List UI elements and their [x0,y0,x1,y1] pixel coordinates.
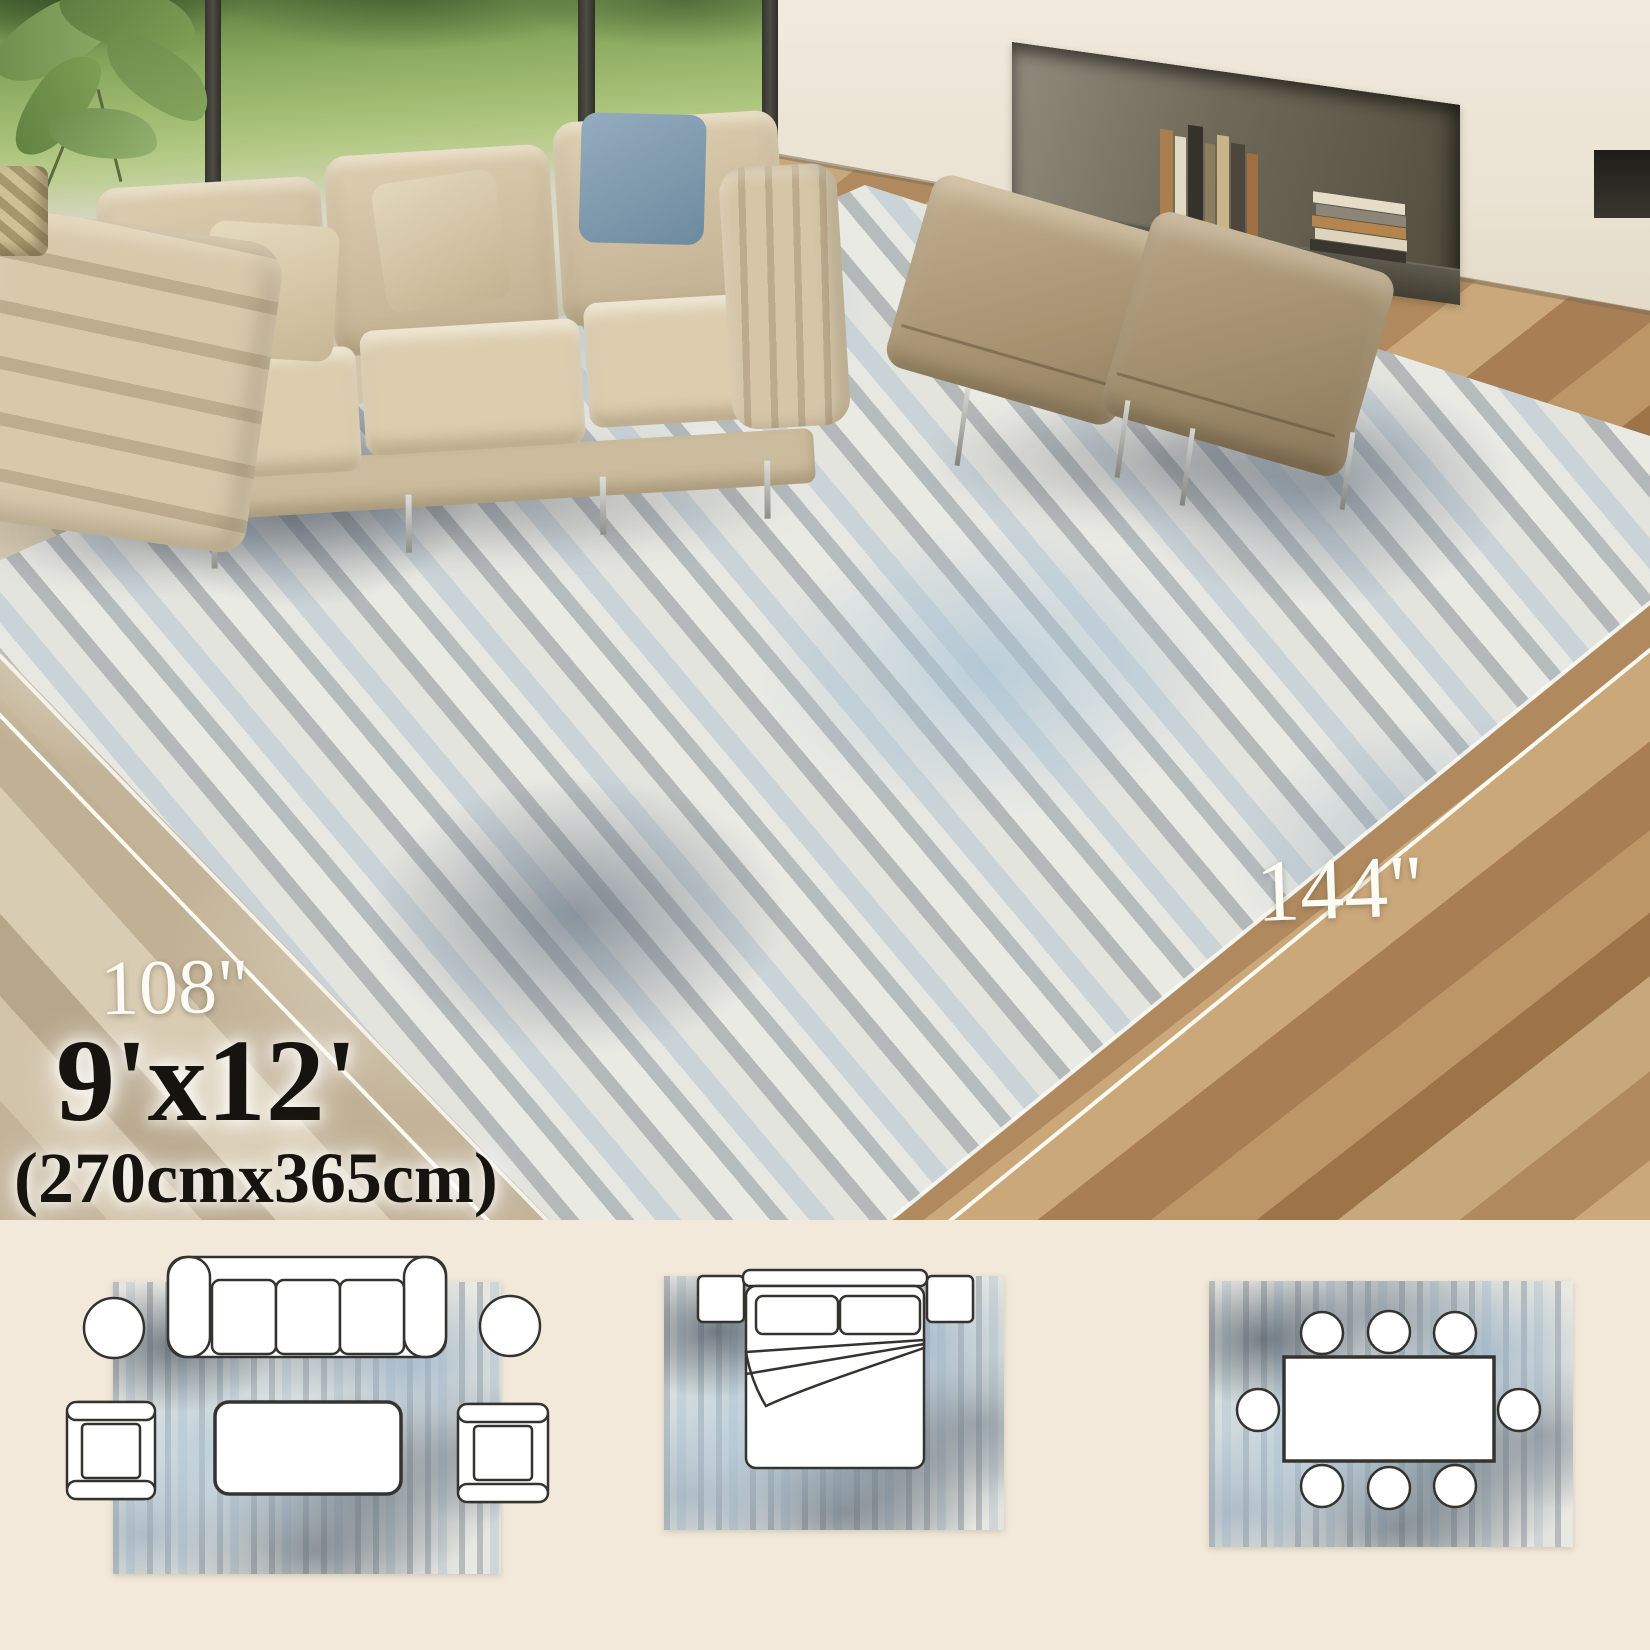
nightstand-topview [927,1276,973,1322]
potted-plant [0,0,258,278]
book-spine [1217,135,1229,239]
dining-chair-topview [1434,1312,1476,1354]
sofa-leg [406,495,413,553]
side-table-topview [84,1298,144,1358]
dining-chair-topview [1301,1465,1343,1507]
sectional-seating-diagram [50,1252,570,1582]
dining-chair-topview [1498,1389,1540,1431]
length-dimension-label: 144" [1255,843,1426,937]
rug-size-metric-label: (270cmx365cm) [14,1142,498,1214]
beige-throw-pillow [370,168,513,315]
sofa-leg [764,461,771,519]
dining-chair-topview [1368,1467,1410,1509]
armchair-topview [458,1404,548,1502]
side-table-topview [480,1296,540,1356]
nightstand-topview [698,1276,744,1322]
coffee-table-topview [215,1402,401,1494]
sofa-topview [168,1257,446,1357]
dining-chair-topview [1434,1465,1476,1507]
dining-chair-topview [1237,1389,1279,1431]
product-infographic: 108" 144" 9'x12' (270cmx365cm) [0,0,1650,1650]
dining-lineart [1150,1252,1620,1582]
rug-size-label: 9'x12' [56,1022,358,1140]
seating-lineart [50,1252,570,1582]
woven-plant-pot [0,166,48,256]
dining-chair-topview [1368,1311,1410,1353]
king-bed-diagram [610,1252,1060,1582]
usage-diagrams-section: Sectionals & large seating groups King b… [0,1220,1650,1650]
book-spine [1231,143,1245,241]
book-spine [1247,153,1258,243]
dining-chair-topview [1301,1312,1343,1354]
living-room-photo: 108" 144" 9'x12' (270cmx365cm) [0,0,1650,1220]
sofa-seat-cushion [359,318,586,456]
ottoman-piping [901,324,1109,386]
dining-diagram [1150,1252,1620,1582]
dining-table-topview [1284,1357,1494,1461]
sofa-armrest [718,162,852,431]
blue-throw-pillow [578,112,706,245]
king-bed-topview [743,1270,927,1468]
bed-lineart [610,1252,1060,1582]
armchair-topview [67,1402,155,1499]
fireplace-slot [1594,150,1650,218]
sofa-leg [600,477,607,535]
